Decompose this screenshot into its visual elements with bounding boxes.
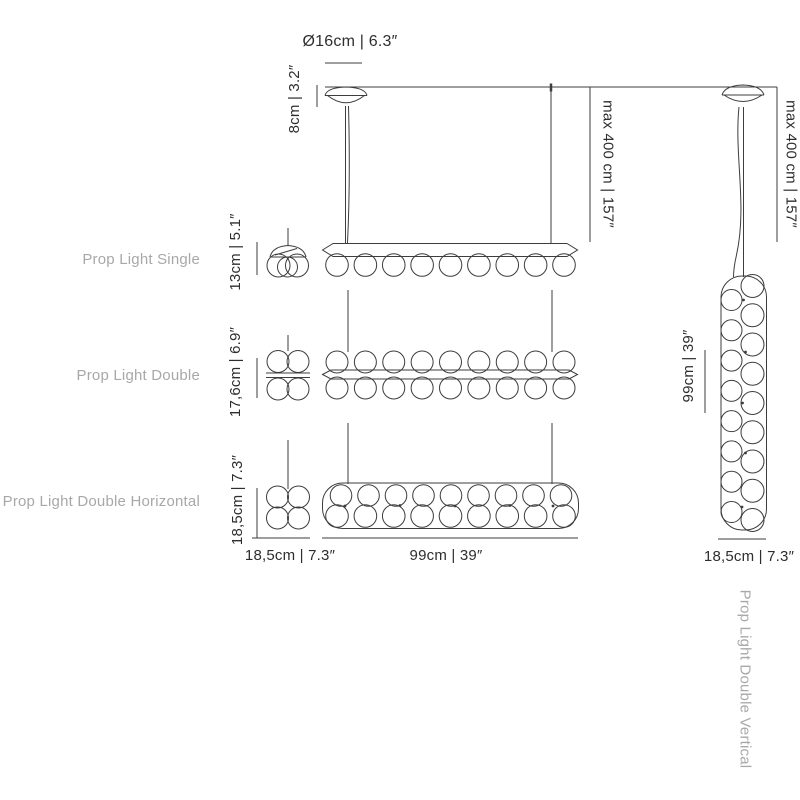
double-vertical-front-view [721,275,767,532]
prop-light-spec-sheet: Ø16cm | 6.3″ 8cm | 3.2″ max 400 cm | 157… [0,0,800,800]
row1-balls [326,254,576,277]
depth-label: 18,5cm | 7.3″ [245,548,335,565]
vertical-balls-left [721,290,742,523]
double-horizontal-side-view [267,440,310,529]
product-label-single: Prop Light Single [82,251,200,268]
product-label-double: Prop Light Double [77,367,200,384]
max-drop-label-left: max 400 cm | 157″ [599,100,616,228]
product-label-double-horizontal: Prop Light Double Horizontal [3,493,200,510]
vertical-canopy-drawing [722,85,764,277]
vertical-length-label: 99cm | 39″ [681,330,698,403]
vertical-width-label: 18,5cm | 7.3″ [704,549,794,566]
max-drop-label-right: max 400 cm | 157″ [782,100,799,228]
single-lamp-side-view [267,228,309,277]
row2-balls-bottom [326,377,575,399]
row3-balls-top [330,485,572,507]
double-horizontal-height-label: 18,5cm | 7.3″ [230,455,247,545]
single-height-label: 13cm | 5.1″ [228,213,245,290]
double-lamp-side-view [266,335,310,400]
suspension-cords [346,87,553,484]
canopy-diameter-label: Ø16cm | 6.3″ [303,33,398,51]
double-horizontal-front-view [323,483,579,529]
length-label: 99cm | 39″ [410,548,483,565]
canopy-height-label: 8cm | 3.2″ [287,65,304,134]
vertical-balls-right [741,275,764,532]
canopy-drawing [325,87,367,103]
double-lamp-front-view [323,351,578,399]
product-label-double-vertical: Prop Light Double Vertical [736,590,753,769]
double-height-label: 17,6cm | 6.9″ [228,327,245,417]
single-lamp-front-view [323,244,578,277]
dimension-lines [252,63,777,539]
row3-balls-bottom [326,505,576,528]
